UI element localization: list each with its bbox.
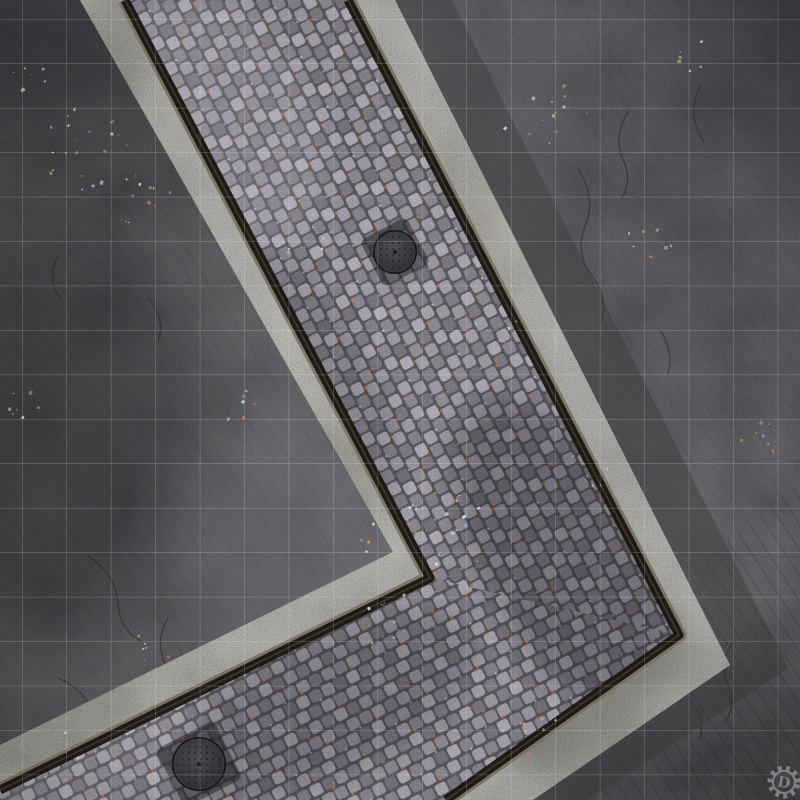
battle-mat: D <box>0 0 800 800</box>
battle-mat-image: D <box>0 0 800 800</box>
vignette <box>0 0 800 800</box>
